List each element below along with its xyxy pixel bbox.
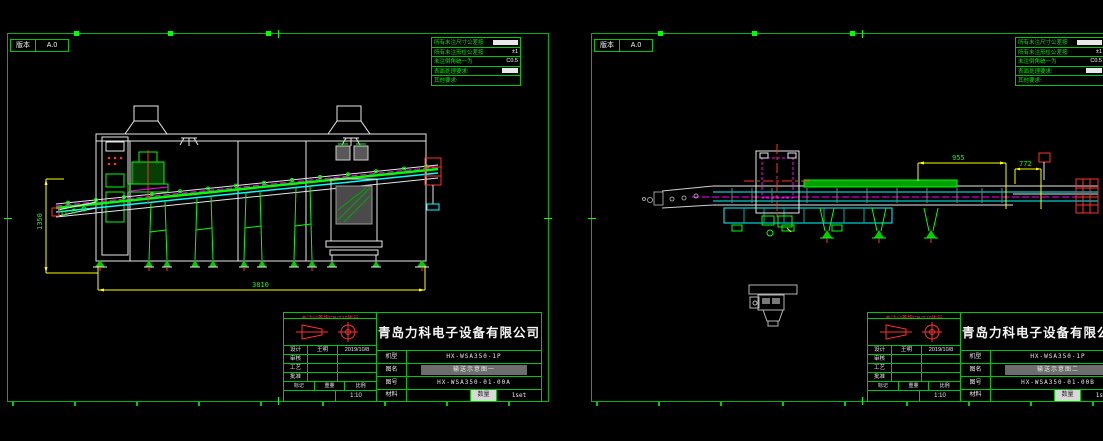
dimension-b [1015,168,1041,209]
projection-symbol-icon [284,319,376,346]
qty-label: 数量 [1055,390,1081,401]
drawing-sheet-2: 版本 A.0 所有未注尺寸公差按GB/T1804 所有未注形位公差按±1 未注倒… [591,33,1103,402]
sign-row-check: 审核 [868,355,960,364]
sign-row-approve: 批准 [868,373,960,382]
sign-row-approve: 批准 [284,373,376,382]
head-unit [744,144,810,236]
exhaust-hoods [125,106,370,134]
scale-row: 1:10 [868,391,960,401]
border-ticks [12,402,544,406]
qty-label: 数量 [471,390,497,401]
field-drawing-number: 图号HX-WSA350-01-00B [961,377,1103,390]
field-model: 机型HX-WSA350-1P [961,351,1103,364]
material-label: 材料 [961,390,991,401]
field-drawing-name: 图名输送示意图一 [377,364,541,377]
drawing-sheet-1: 版本 A.0 所有未注尺寸公差按GB/T1804 所有未注形位公差按±1 未注倒… [7,33,549,402]
conveyor-rails [692,180,1098,205]
field-model: 机型HX-WSA350-1P [377,351,541,364]
company-name: 青岛力科电子设备有限公司 [961,313,1103,351]
company-name: 青岛力科电子设备有限公司 [377,313,541,351]
sign-row-process: 工艺 [284,364,376,373]
sign-row-process: 工艺 [868,364,960,373]
inclined-conveyor [56,165,438,217]
right-end-unit [1039,153,1098,213]
field-drawing-number: 图号HX-WSA350-01-00A [377,377,541,390]
dim-a-text: 955 [952,154,965,162]
material-qty-row: 材料 数量 1set [377,390,541,401]
dim-height-text: 1350 [36,213,44,230]
under-structure [724,208,892,231]
press-unit [326,144,382,261]
material-value [991,390,1055,401]
dimension-height [45,179,99,273]
title-block: 未注公差按GB/T19执行 设计王明2019/10/8 审核 工艺 批准 标记重… [867,312,1103,402]
material-qty-row: 材料 数量 1set [961,390,1103,401]
cad-canvas: { "colors": { "background": "#000000", "… [0,0,1103,441]
scale-value: 1:10 [919,391,960,401]
dim-length-text: 3810 [252,281,269,289]
mark-weight-scale-row: 标记重量比例 [284,382,376,391]
detail-part [749,285,797,326]
qty-value: 1set [1081,390,1103,401]
sign-row-check: 审核 [284,355,376,364]
material-value [407,390,471,401]
sign-row-design: 设计王明2019/10/8 [284,346,376,355]
border-ticks [596,402,1103,406]
qty-value: 1set [497,390,541,401]
dim-b-text: 772 [1019,160,1032,168]
title-block: 未注公差按GB/T19执行 设计王明2019/10/8 审核 工艺 批准 标记重… [283,312,542,402]
material-label: 材料 [377,390,407,401]
mark-weight-scale-row: 标记重量比例 [868,382,960,391]
field-drawing-name: 图名输送示意图二 [961,364,1103,377]
scale-row: 1:10 [284,391,376,401]
scale-value: 1:10 [335,391,376,401]
sign-row-design: 设计王明2019/10/8 [868,346,960,355]
lamp-symbols [180,138,360,146]
projection-symbol-icon [868,319,960,346]
